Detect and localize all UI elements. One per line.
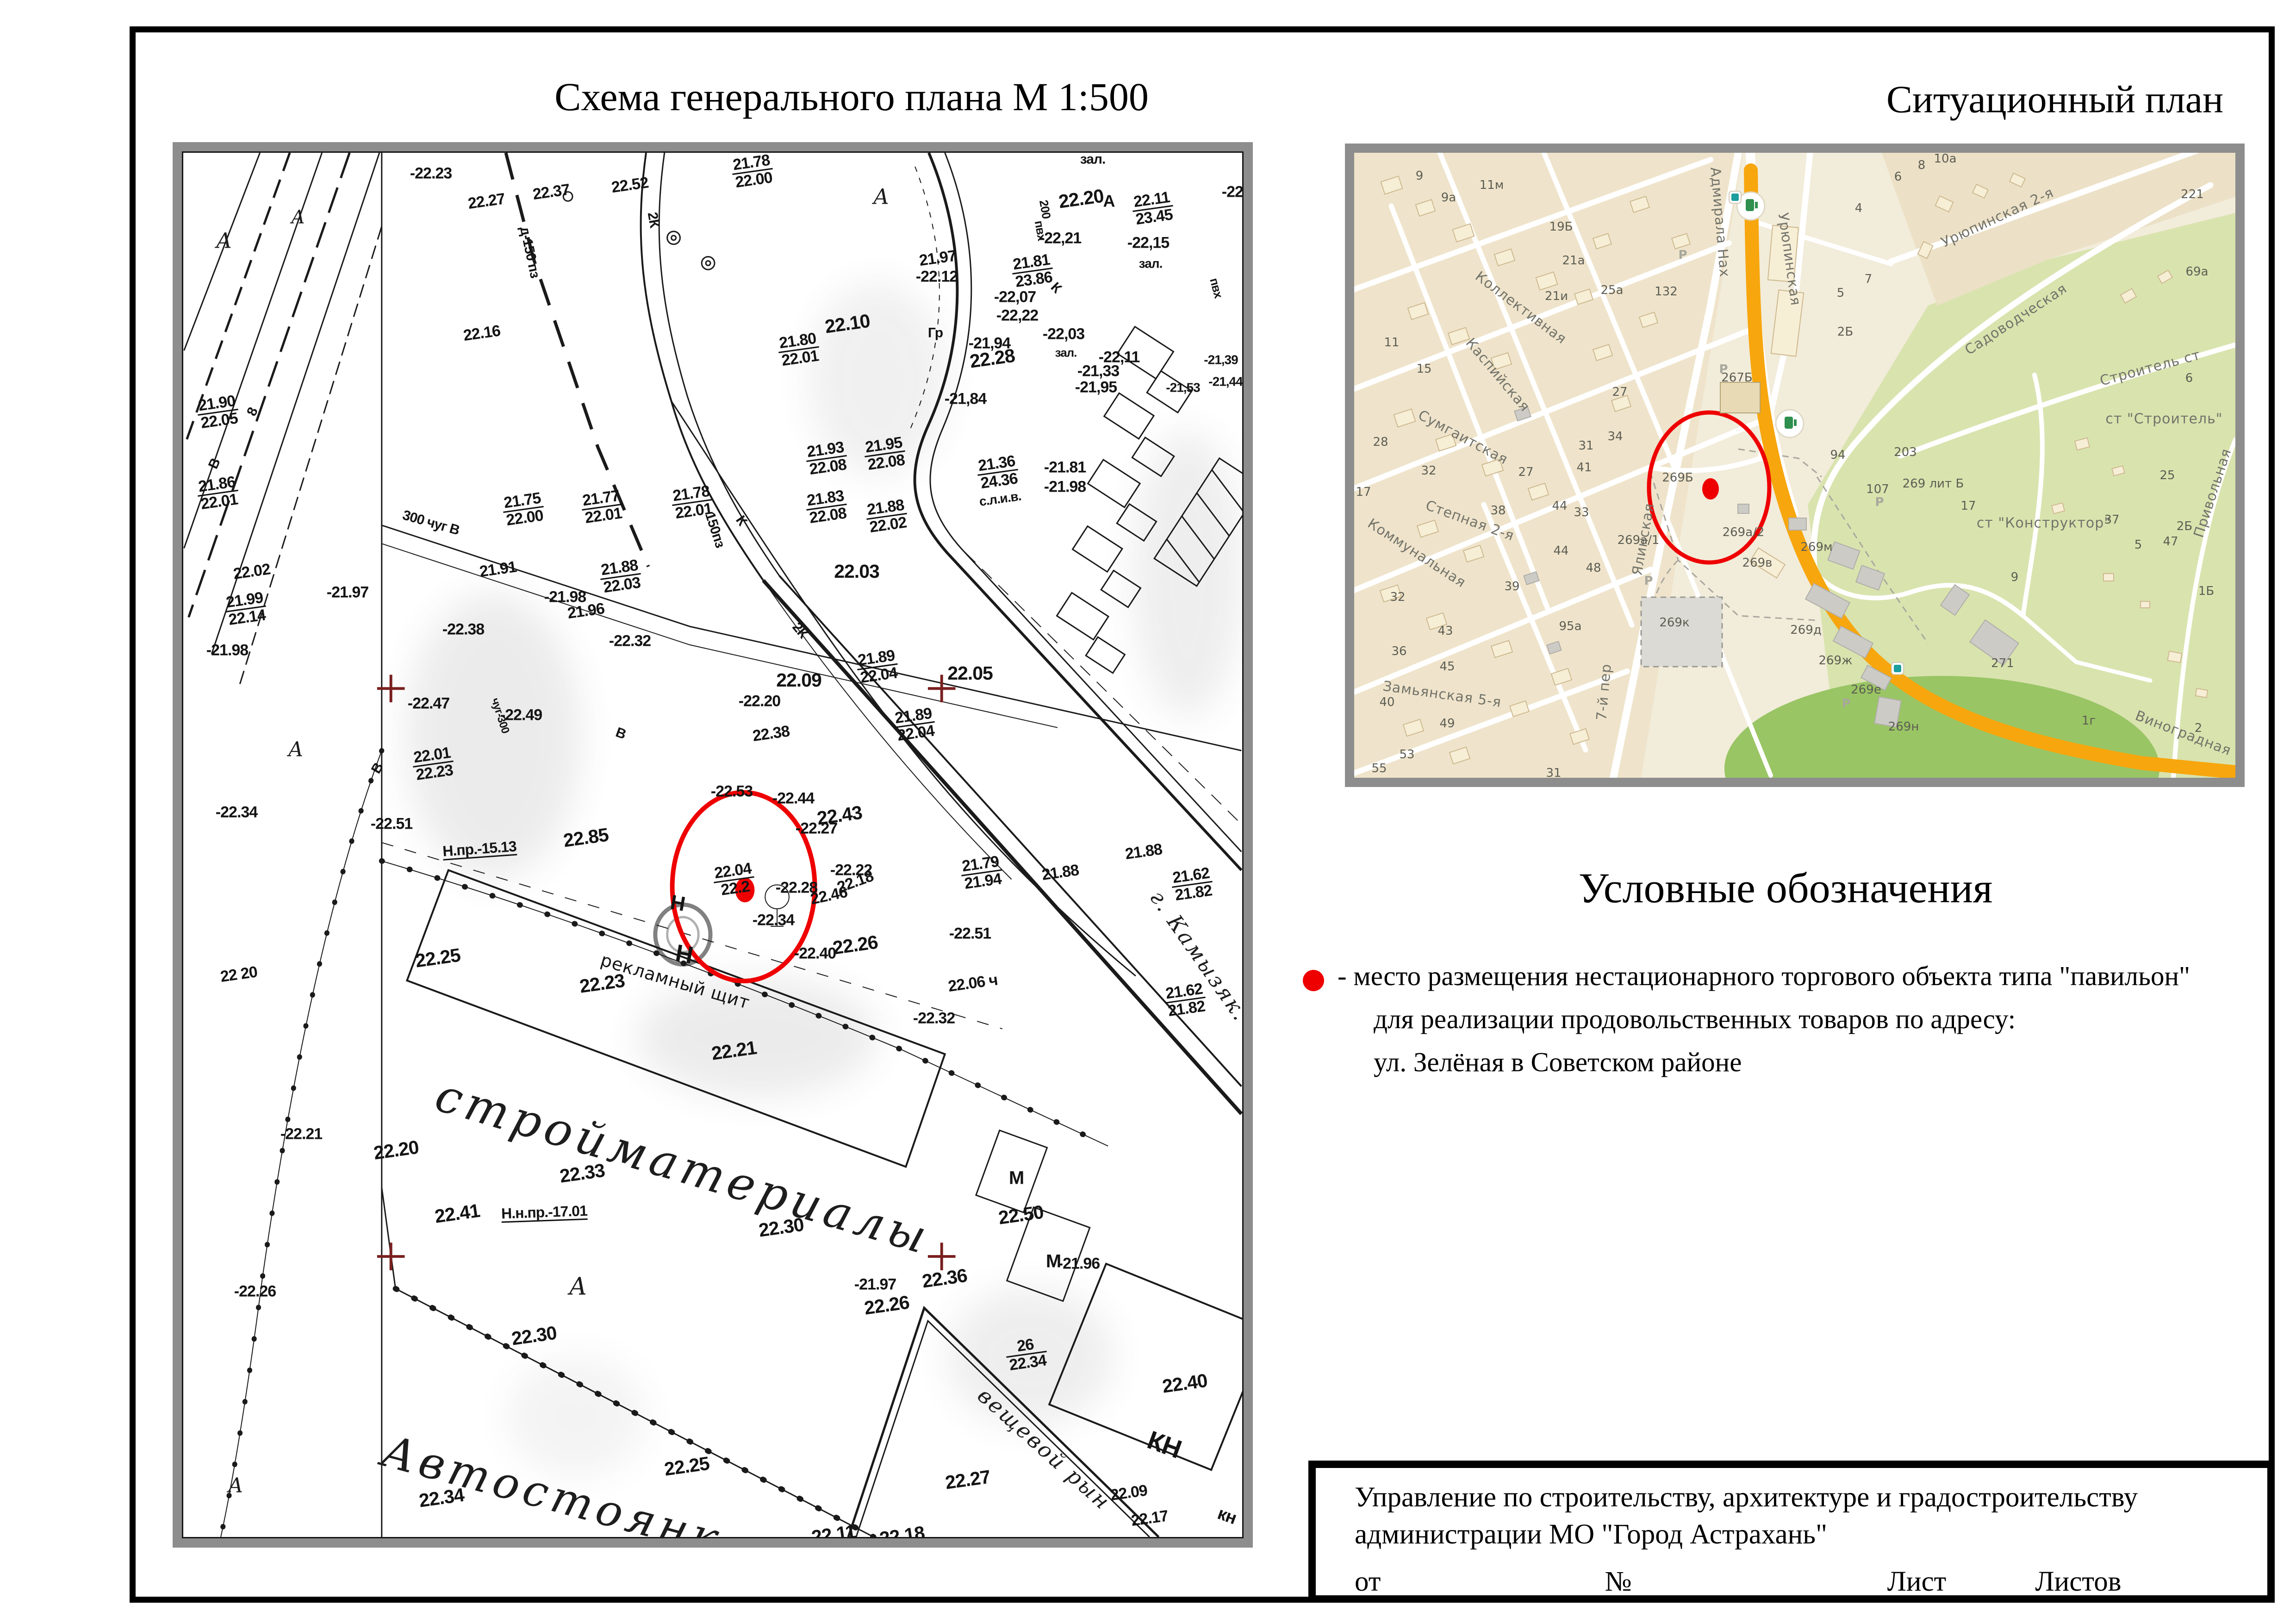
house-number: 47 xyxy=(2163,535,2178,549)
house-number: 10а xyxy=(1934,153,1956,166)
map-label: 21.3624.36 xyxy=(975,453,1020,492)
house-number: 269к xyxy=(1659,616,1689,630)
house-number: 4 xyxy=(1855,201,1863,215)
map-label: -21.98 xyxy=(206,643,248,659)
map-label: -21.97 xyxy=(854,1277,896,1293)
house-number: 269в xyxy=(1742,556,1773,570)
legend-line: ул. Зелёная в Советском районе xyxy=(1338,1041,2190,1084)
map-label: -21,33 xyxy=(1077,363,1119,380)
house-number: 2Б xyxy=(1837,325,1853,339)
map-label: 21.6221.82 xyxy=(1163,981,1207,1019)
house-number: 107 xyxy=(1866,482,1889,496)
map-label: -21.96 xyxy=(1058,1256,1100,1272)
house-number: 48 xyxy=(1586,561,1601,575)
house-number: 37 xyxy=(2104,513,2119,527)
house-number: 203 xyxy=(1894,445,1917,459)
map-label: 21.9322.08 xyxy=(804,439,849,478)
sheets-label: Листов xyxy=(2035,1563,2121,1600)
house-number: 94 xyxy=(1830,448,1845,462)
map-label: 21.9922.14 xyxy=(223,589,268,628)
map-label: -21,84 xyxy=(945,391,986,407)
house-number: 27 xyxy=(1612,385,1627,399)
house-number: 31 xyxy=(1546,766,1561,778)
house-number: Р xyxy=(1678,248,1687,262)
house-number: 32 xyxy=(1390,590,1405,604)
map-label: -21.97 xyxy=(327,585,368,601)
map-label: -22.2 xyxy=(1222,184,1244,200)
map-label: А xyxy=(288,740,305,761)
map-label: -22.44 xyxy=(772,791,814,807)
house-number: 7 xyxy=(1865,272,1873,286)
title-block-fields: от № Лист Листов xyxy=(1355,1563,2249,1600)
map-label: 21.7822.00 xyxy=(730,152,775,191)
map-label: 200 xyxy=(1037,199,1052,219)
house-number: 2Б xyxy=(2177,519,2192,533)
map-label: -21,95 xyxy=(1075,380,1117,396)
map-label: 22.0122.23 xyxy=(411,744,455,783)
map-label: А xyxy=(228,1476,245,1497)
house-number: 6 xyxy=(2185,371,2193,385)
map-label: зал. xyxy=(1139,257,1163,271)
map-label: 21.9022.05 xyxy=(195,393,240,431)
house-number: 132 xyxy=(1655,285,1678,299)
map-label: 22.05 xyxy=(947,664,993,683)
map-label: зал. xyxy=(1055,347,1077,359)
map-label: 21.8022.01 xyxy=(776,330,821,369)
house-number: 1Б xyxy=(2198,584,2214,598)
map-label: -22,07 xyxy=(994,289,1036,306)
map-label: Гр xyxy=(928,326,943,341)
map-label: -22,15 xyxy=(1127,235,1169,251)
map-label: 21.8123.86 xyxy=(1010,251,1055,290)
house-number: 17 xyxy=(1356,485,1371,499)
map-label: -22.51 xyxy=(371,816,412,832)
map-label: 21.8822.02 xyxy=(864,497,909,536)
map-label: -22,22 xyxy=(996,308,1038,324)
map-label: -22.21 xyxy=(280,1126,322,1143)
from-label: от xyxy=(1355,1563,1381,1600)
street-label: ст "Строитель" xyxy=(2105,411,2222,427)
legend-red-dot xyxy=(1303,970,1324,991)
house-number: 11 xyxy=(1384,336,1399,350)
title-block-line2: администрации МО "Город Астрахань" xyxy=(1355,1516,2249,1553)
house-number: 27 xyxy=(1518,465,1533,479)
map-label: 21.7921.94 xyxy=(959,853,1004,892)
number-label: № xyxy=(1605,1563,1631,1600)
map-label: 21.6221.82 xyxy=(1170,865,1214,904)
house-number: 9а xyxy=(1441,191,1456,205)
house-number: 269е xyxy=(1851,683,1881,697)
map-label: 21.8822.03 xyxy=(598,557,643,596)
house-number: 53 xyxy=(1399,748,1414,762)
house-number: 269д xyxy=(1790,623,1822,637)
general-plan-title: Схема генерального плана М 1:500 xyxy=(554,74,1149,120)
legend-text: - место размещения нестационарного торго… xyxy=(1338,955,2190,1084)
map-label: 21.8922.04 xyxy=(855,647,900,686)
house-number: 9 xyxy=(1416,169,1424,183)
house-number: 95а xyxy=(1559,619,1581,633)
house-number: 5 xyxy=(1837,286,1845,300)
house-number: 269ж xyxy=(1818,654,1852,668)
sit-map-building xyxy=(1737,504,1749,514)
sit-map-building xyxy=(2103,573,2114,581)
general-plan-map: ААААААА8ВВВ21.9022.0521.8622.0121.9922.1… xyxy=(173,142,1253,1548)
map-label: -22.32 xyxy=(609,633,651,650)
map-label: -22.47 xyxy=(408,696,449,712)
sheets-blank xyxy=(2129,1572,2198,1600)
house-number: 271 xyxy=(1991,656,2014,670)
house-number: 39 xyxy=(1504,580,1519,593)
map-label: -22.38 xyxy=(442,622,484,638)
map-label: А xyxy=(291,208,307,227)
date-blank xyxy=(1388,1572,1592,1600)
map-label: -21,53 xyxy=(1166,381,1200,395)
house-number: 5 xyxy=(2134,538,2142,552)
title-block: Управление по строительству, архитектуре… xyxy=(1308,1461,2275,1603)
house-number: 25а xyxy=(1600,283,1623,297)
map-label: -22.53 xyxy=(711,784,753,800)
house-number: 21а xyxy=(1562,254,1585,268)
map-label: -22,03 xyxy=(1043,326,1084,343)
map-label: А xyxy=(1103,193,1115,210)
house-number: 269 лит Б xyxy=(1903,477,1964,491)
house-number: 34 xyxy=(1607,430,1623,443)
map-label: -22.23 xyxy=(410,166,452,182)
map-label: 21.9522.08 xyxy=(862,434,907,473)
map-label: 2622.34 xyxy=(1004,1335,1049,1374)
legend-line: для реализации продовольственных товаров… xyxy=(1338,998,2190,1041)
house-number: 17 xyxy=(1960,499,1976,513)
house-number: 43 xyxy=(1437,624,1453,638)
house-number: 269м xyxy=(1800,540,1832,554)
map-label: 21.8622.01 xyxy=(195,474,240,512)
house-number: 269н xyxy=(1888,720,1919,734)
map-label: -22.20 xyxy=(739,693,780,710)
house-number: 31 xyxy=(1578,439,1593,453)
map-label: 2К xyxy=(645,211,661,229)
house-number: 55 xyxy=(1371,762,1387,775)
street-label: ст "Конструктор" xyxy=(1977,515,2111,531)
map-label: Н.н.пр.-17.01 xyxy=(501,1203,588,1223)
house-number: 19Б xyxy=(1549,220,1573,234)
map-label: -22.34 xyxy=(216,805,257,821)
house-number: 269а/2 xyxy=(1723,525,1765,539)
map-label: -22.40 xyxy=(794,946,836,962)
map-label: 21.7722.01 xyxy=(579,487,624,526)
situation-map-content: КоллективнаяКаспийскаяСумгаитскаяКоммуна… xyxy=(1354,153,2235,778)
house-number: 33 xyxy=(1574,506,1589,519)
map-label: -21,39 xyxy=(1204,354,1238,367)
house-number: 49 xyxy=(1439,717,1455,731)
house-number: 2 xyxy=(2195,721,2203,735)
map-label: -22.32 xyxy=(913,1011,955,1027)
map-label: зал. xyxy=(1080,153,1106,167)
house-number: 45 xyxy=(1439,660,1455,674)
house-number: 69а xyxy=(2185,265,2208,279)
plan-linework xyxy=(183,153,1242,1537)
map-label: А xyxy=(216,230,234,252)
house-number: 38 xyxy=(1490,504,1506,518)
map-label: -22.49 xyxy=(500,707,542,724)
house-number: 32 xyxy=(1421,464,1436,478)
house-number: Р xyxy=(1875,495,1884,509)
house-number: 9 xyxy=(2011,570,2019,584)
map-label: 21.8922.04 xyxy=(892,705,937,744)
house-number: 25 xyxy=(2159,468,2175,482)
sheet-label: Лист xyxy=(1887,1563,1947,1600)
map-label: А xyxy=(569,1274,589,1299)
house-number: 28 xyxy=(1373,435,1388,449)
house-number: 221 xyxy=(2181,187,2204,201)
map-label: -22.12 xyxy=(916,269,958,285)
legend-line: - место размещения нестационарного торго… xyxy=(1338,955,2190,998)
map-label: пвх xyxy=(1033,219,1048,241)
sheet-blank xyxy=(1954,1572,2018,1600)
general-plan-map-content: ААААААА8ВВВ21.9022.0521.8622.0121.9922.1… xyxy=(182,151,1244,1538)
house-number: Р xyxy=(1842,697,1850,711)
situation-map: КоллективнаяКаспийскаяСумгаитскаяКоммуна… xyxy=(1345,144,2245,787)
map-label: М xyxy=(1046,1252,1061,1271)
map-label: 21.7822.01 xyxy=(670,483,715,522)
map-label: А xyxy=(873,186,891,208)
map-label: -22.34 xyxy=(753,912,794,929)
map-label: -21,44 xyxy=(1208,375,1242,389)
house-number: 8 xyxy=(1918,158,1926,172)
house-number: Р xyxy=(1644,574,1653,588)
map-label: 21.7522.00 xyxy=(501,490,546,529)
map-label: 22.03 xyxy=(834,562,879,581)
map-label: 22.1123.45 xyxy=(1130,189,1175,228)
house-number: 41 xyxy=(1576,461,1592,475)
number-blank xyxy=(1639,1572,1871,1600)
house-number: 40 xyxy=(1379,695,1394,709)
map-label: -21.98 xyxy=(1044,479,1086,495)
sit-map-building xyxy=(1788,518,1807,531)
house-number: 36 xyxy=(1391,644,1406,658)
house-number: 269а/1 xyxy=(1618,533,1660,547)
map-label: 21.8322.08 xyxy=(804,487,849,526)
sit-map-building xyxy=(2140,601,2150,608)
house-number: 21и xyxy=(1545,289,1568,303)
legend-title: Условные обозначения xyxy=(1579,863,1993,912)
title-block-line1: Управление по строительству, архитектуре… xyxy=(1355,1479,2249,1516)
house-number: 11м xyxy=(1480,178,1504,192)
situation-plan-title: Ситуационный план xyxy=(1886,77,2223,122)
house-number: 1г xyxy=(2082,714,2096,728)
map-label: -21.81 xyxy=(1044,460,1086,476)
document-page: Схема генерального плана М 1:500 Ситуаци… xyxy=(0,0,2296,1624)
house-number: 44 xyxy=(1553,544,1568,558)
map-label: -22.51 xyxy=(949,926,991,942)
house-number: 15 xyxy=(1416,362,1431,376)
map-label: М xyxy=(1009,1169,1024,1188)
site-dot-marker-sit xyxy=(1702,478,1719,500)
house-number: 44 xyxy=(1552,499,1567,513)
map-label: 22.0422.2 xyxy=(711,860,756,899)
sit-map-building xyxy=(1720,382,1761,413)
house-number: 269Б xyxy=(1662,471,1693,485)
house-number: Р xyxy=(1719,362,1728,376)
house-number: 6 xyxy=(1894,170,1902,184)
map-label: -22.26 xyxy=(234,1284,276,1300)
map-label: 22.09 xyxy=(776,671,821,690)
